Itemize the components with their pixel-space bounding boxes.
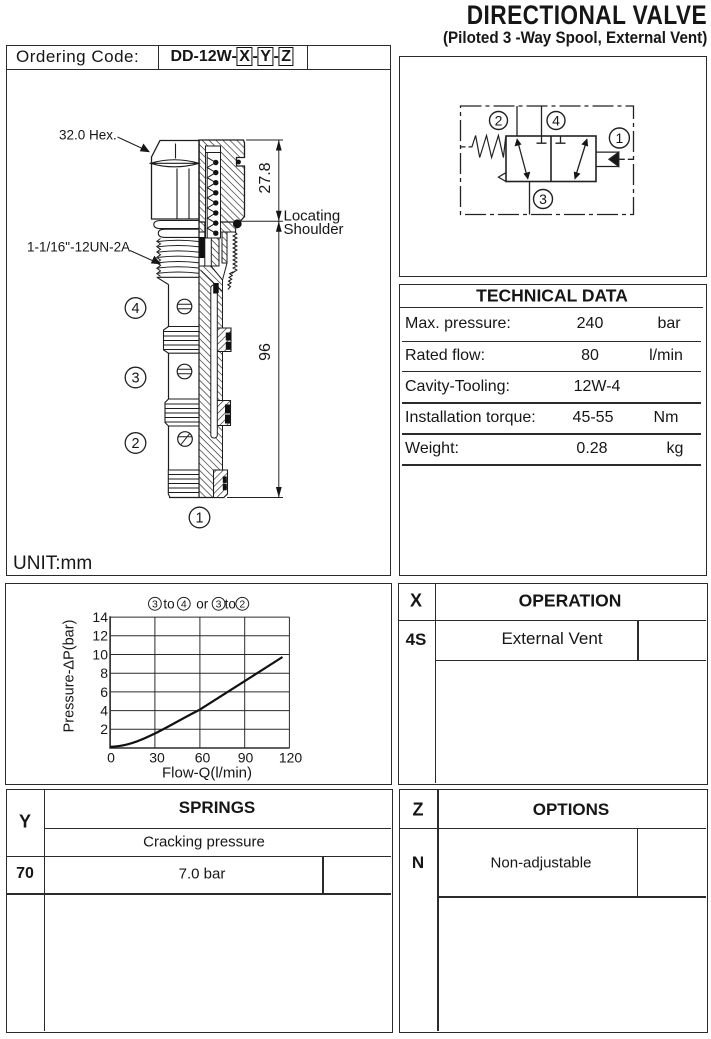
svg-text:or: or	[196, 596, 209, 611]
svg-text:1: 1	[616, 130, 624, 146]
svg-text:27.8: 27.8	[257, 162, 274, 193]
svg-text:4: 4	[100, 703, 108, 719]
svg-text:4: 4	[552, 113, 560, 129]
svg-text:1: 1	[195, 511, 203, 527]
svg-text:Flow-Q(l/min): Flow-Q(l/min)	[162, 765, 252, 782]
svg-text:6: 6	[100, 684, 108, 700]
svg-text:3: 3	[131, 371, 139, 387]
svg-text:2: 2	[100, 721, 108, 737]
svg-text:8: 8	[100, 665, 108, 681]
svg-text:120: 120	[279, 750, 303, 766]
svg-text:32.0 Hex.: 32.0 Hex.	[59, 128, 117, 143]
svg-text:10: 10	[92, 646, 108, 662]
svg-text:3: 3	[216, 599, 222, 611]
svg-text:1-1/16"-12UN-2A: 1-1/16"-12UN-2A	[27, 240, 130, 255]
svg-text:to: to	[163, 596, 174, 611]
svg-text:4: 4	[181, 599, 187, 611]
svg-text:2: 2	[239, 599, 245, 611]
svg-text:0: 0	[107, 750, 115, 766]
svg-text:30: 30	[149, 750, 165, 766]
svg-text:2: 2	[131, 436, 139, 452]
svg-text:60: 60	[195, 750, 211, 766]
svg-text:to: to	[225, 596, 236, 611]
svg-text:90: 90	[238, 750, 254, 766]
svg-text:4: 4	[131, 301, 139, 317]
svg-text:2: 2	[495, 113, 503, 129]
svg-text:12: 12	[92, 628, 108, 644]
svg-text:96: 96	[257, 343, 274, 361]
svg-text:14: 14	[92, 609, 108, 625]
svg-text:Pressure-ΔP(bar): Pressure-ΔP(bar)	[62, 620, 78, 733]
svg-text:3: 3	[152, 599, 158, 611]
svg-text:3: 3	[539, 191, 547, 207]
svg-text:Shoulder: Shoulder	[284, 221, 344, 238]
